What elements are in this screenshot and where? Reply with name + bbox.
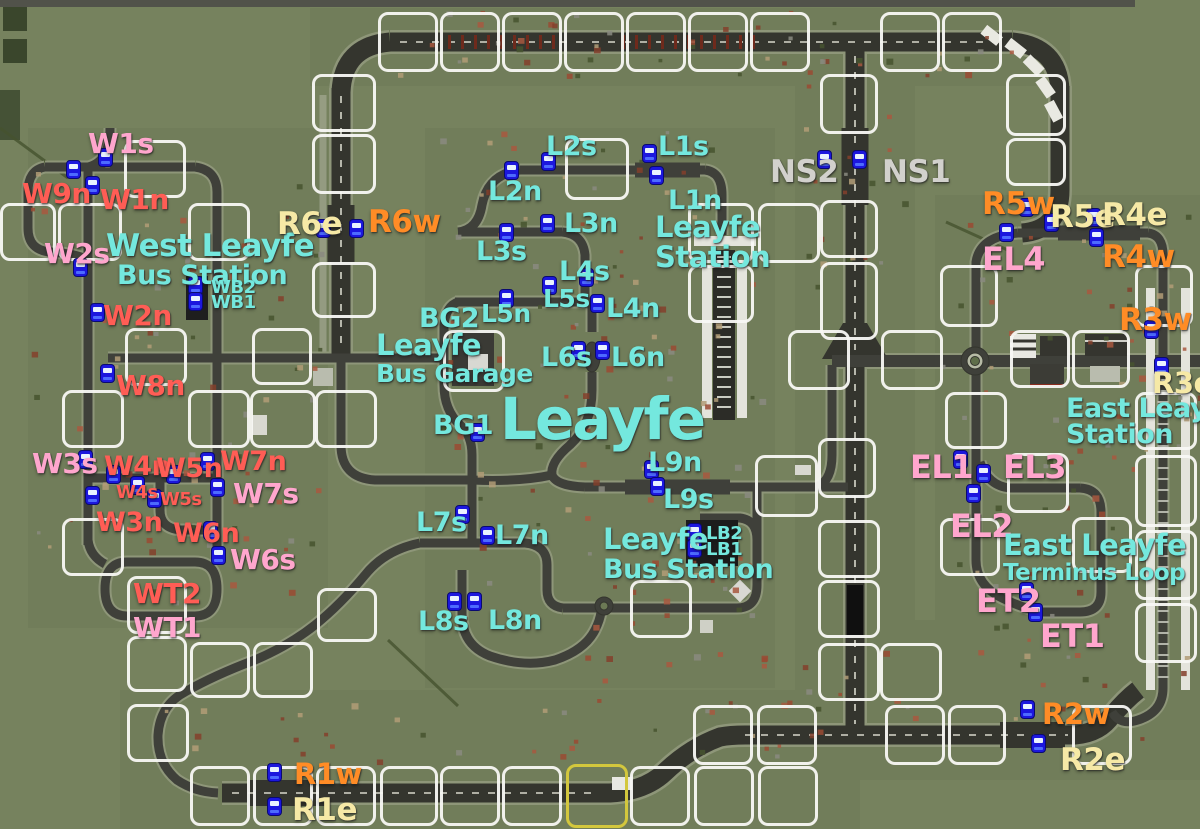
- label-east-leayfe-station-line1: East Leayfe: [1066, 395, 1200, 422]
- label-l6s: L6s: [541, 344, 592, 371]
- label-leayfe-town: Leayfe: [500, 390, 704, 448]
- label-wt1: WT1: [133, 614, 201, 642]
- label-w3s: W3s: [32, 450, 98, 478]
- label-w7n: W7n: [220, 448, 286, 475]
- bus-stop-icon[interactable]: [188, 292, 203, 311]
- label-l8s: L8s: [418, 608, 469, 635]
- bus-stop-icon[interactable]: [976, 464, 991, 483]
- label-bus-garage-line2: Bus Garage: [376, 361, 533, 386]
- label-ns1: NS1: [882, 157, 950, 188]
- label-w3n: W3n: [96, 509, 162, 536]
- label-bg1: BG1: [433, 412, 493, 439]
- label-r1w: R1w: [294, 760, 362, 789]
- label-el3: EL3: [1003, 451, 1066, 483]
- label-l1s: L1s: [658, 133, 709, 160]
- label-r4w: R4w: [1102, 242, 1175, 273]
- label-w4s: W4s: [116, 484, 158, 502]
- label-w6s: W6s: [230, 546, 296, 574]
- label-l3n: L3n: [564, 210, 618, 237]
- label-r4e: R4e: [1102, 200, 1167, 231]
- label-leayfe-bus-station-line2: Bus Station: [603, 556, 773, 583]
- label-w2n: W2n: [103, 302, 172, 330]
- label-r2e: R2e: [1060, 745, 1125, 776]
- bus-stop-icon[interactable]: [540, 214, 555, 233]
- label-w9n: W9n: [22, 180, 91, 208]
- label-w5s: W5s: [160, 491, 202, 509]
- label-east-leayfe-terminus-line1: East Leayfe: [1003, 531, 1186, 560]
- bus-stop-icon[interactable]: [649, 166, 664, 185]
- label-ns2: NS2: [770, 157, 838, 188]
- leayfe-map: W1sW9nW1nW2sWest LeayfeBus StationWB2WB1…: [0, 0, 1200, 829]
- bus-stop-icon[interactable]: [267, 797, 282, 816]
- label-r1e: R1e: [292, 795, 357, 826]
- label-r6e: R6e: [277, 209, 342, 240]
- label-leayfe-bus-station-line1: Leayfe: [603, 525, 708, 554]
- label-l6n: L6n: [611, 344, 665, 371]
- label-leayfe-station-line1: Leayfe: [655, 213, 760, 242]
- label-wt2: WT2: [133, 580, 201, 608]
- label-et1: ET1: [1040, 620, 1104, 652]
- bus-stop-icon[interactable]: [966, 484, 981, 503]
- label-lb1: LB1: [706, 541, 742, 559]
- label-l5n: L5n: [481, 301, 531, 326]
- bus-stop-icon[interactable]: [349, 219, 364, 238]
- label-leayfe-station-line2: Station: [655, 243, 770, 272]
- label-w7s: W7s: [233, 480, 299, 508]
- label-w2s: W2s: [44, 240, 110, 268]
- bus-stop-icon[interactable]: [267, 763, 282, 782]
- label-east-leayfe-station-line2: Station: [1066, 421, 1173, 448]
- label-l7s: L7s: [416, 509, 467, 536]
- label-r3w: R3w: [1119, 305, 1192, 336]
- bus-stop-icon[interactable]: [85, 486, 100, 505]
- bus-stop-icon[interactable]: [642, 144, 657, 163]
- label-w8n: W8n: [116, 372, 185, 400]
- label-l5s: L5s: [543, 286, 590, 311]
- label-w5n: W5n: [156, 455, 222, 482]
- bus-stop-icon[interactable]: [1031, 734, 1046, 753]
- label-r2w: R2w: [1042, 700, 1110, 729]
- label-west-leayfe-line2: Bus Station: [117, 262, 287, 289]
- label-et2: ET2: [976, 585, 1040, 617]
- label-l4n: L4n: [606, 295, 660, 322]
- label-l9s: L9s: [663, 486, 714, 513]
- label-el1: EL1: [910, 451, 973, 483]
- bus-stop-icon[interactable]: [1020, 700, 1035, 719]
- label-r6w: R6w: [368, 207, 441, 238]
- label-l8n: L8n: [488, 607, 542, 634]
- bus-stop-icon[interactable]: [590, 294, 605, 313]
- label-l7n: L7n: [495, 522, 549, 549]
- label-w1n: W1n: [100, 186, 169, 214]
- label-r5w: R5w: [982, 189, 1055, 220]
- label-l2n: L2n: [488, 178, 542, 205]
- label-wb1: WB1: [211, 294, 256, 312]
- bus-stop-icon[interactable]: [480, 526, 495, 545]
- bus-stop-icon[interactable]: [852, 150, 867, 169]
- label-w1s: W1s: [88, 130, 154, 158]
- label-l4s: L4s: [559, 258, 610, 285]
- bus-stop-icon[interactable]: [100, 364, 115, 383]
- label-el4: EL4: [982, 243, 1045, 275]
- bus-stop-icon[interactable]: [595, 341, 610, 360]
- label-l3s: L3s: [476, 238, 527, 265]
- label-l9n: L9n: [648, 449, 702, 476]
- label-l2s: L2s: [546, 133, 597, 160]
- label-bus-garage-line1: Leayfe: [376, 331, 481, 360]
- bus-stop-icon[interactable]: [467, 592, 482, 611]
